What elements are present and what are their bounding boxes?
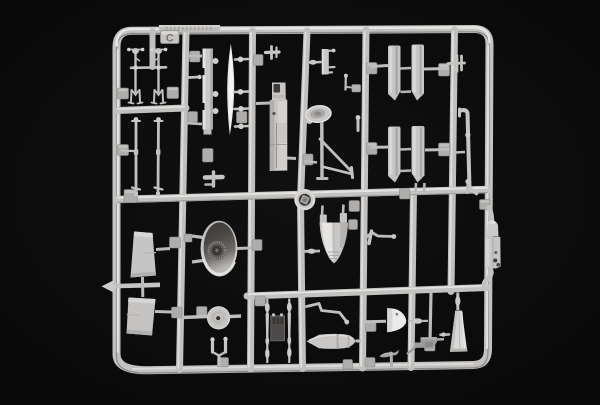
svg-text:C: C [166, 33, 174, 45]
